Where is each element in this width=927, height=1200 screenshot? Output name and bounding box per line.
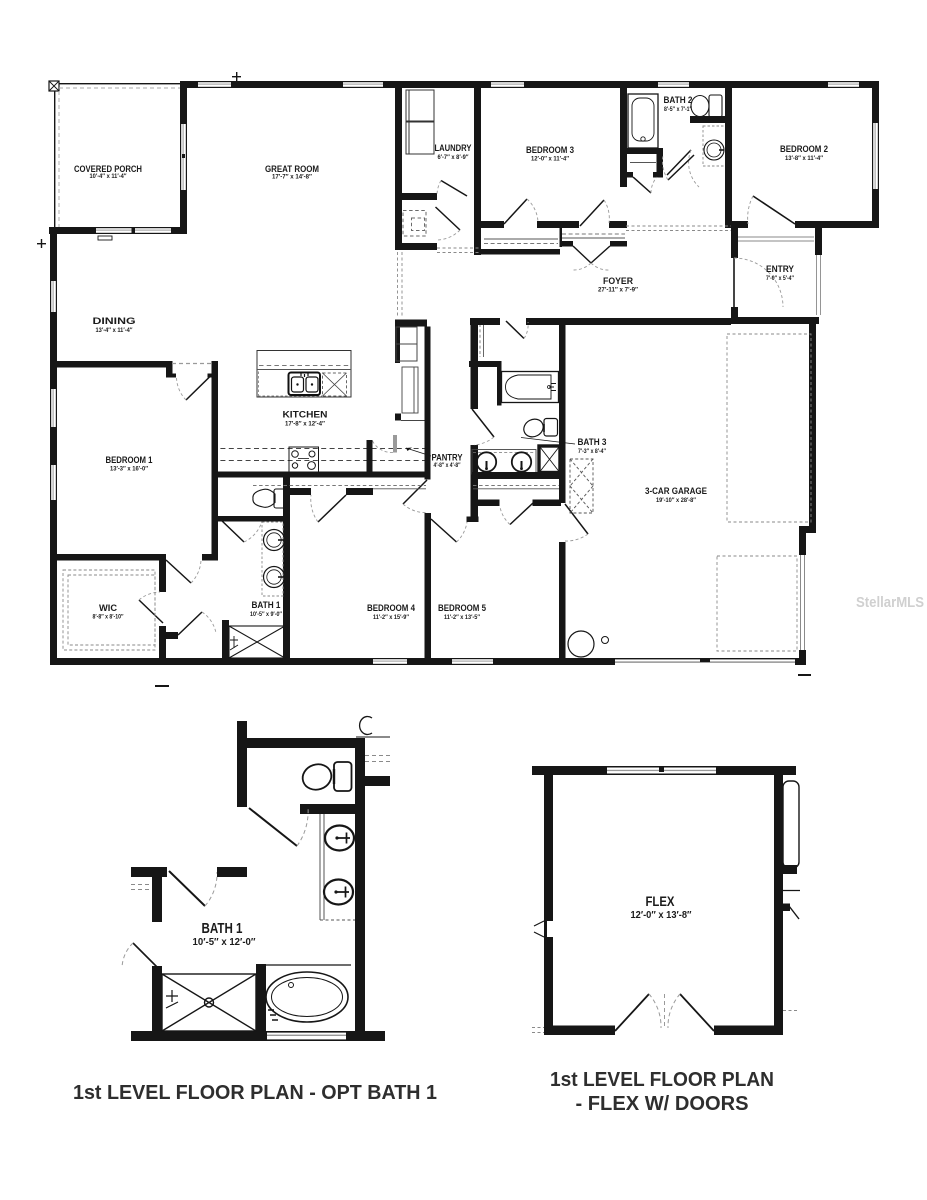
svg-text:13′-3″ x 16′-0″: 13′-3″ x 16′-0″ bbox=[110, 467, 148, 473]
svg-text:BATH 2: BATH 2 bbox=[664, 95, 693, 105]
svg-text:12′-0″ x 11′-4″: 12′-0″ x 11′-4″ bbox=[531, 157, 569, 163]
svg-text:COVERED PORCH: COVERED PORCH bbox=[74, 164, 142, 174]
svg-text:3-CAR GARAGE: 3-CAR GARAGE bbox=[645, 486, 707, 496]
svg-text:PANTRY: PANTRY bbox=[432, 453, 463, 463]
svg-text:KITCHEN: KITCHEN bbox=[283, 410, 328, 420]
svg-text:BEDROOM 4: BEDROOM 4 bbox=[367, 603, 416, 613]
svg-text:ENTRY: ENTRY bbox=[766, 264, 794, 274]
svg-text:BEDROOM 3: BEDROOM 3 bbox=[526, 145, 574, 155]
svg-text:- FLEX W/ DOORS: - FLEX W/ DOORS bbox=[576, 1092, 749, 1115]
svg-text:19′-10″ x 28′-8″: 19′-10″ x 28′-8″ bbox=[656, 498, 696, 504]
svg-text:11′-2″ x 13′-5″: 11′-2″ x 13′-5″ bbox=[444, 615, 480, 621]
svg-text:13′-4″ x 11′-4″: 13′-4″ x 11′-4″ bbox=[96, 328, 133, 334]
svg-text:17′-8″ x 12′-4″: 17′-8″ x 12′-4″ bbox=[285, 422, 325, 428]
svg-text:8′-5″ x 7′-1″: 8′-5″ x 7′-1″ bbox=[664, 107, 692, 113]
svg-text:BATH 3: BATH 3 bbox=[578, 437, 607, 447]
svg-text:GREAT ROOM: GREAT ROOM bbox=[265, 164, 319, 174]
svg-text:1st LEVEL FLOOR PLAN - OPT BAT: 1st LEVEL FLOOR PLAN - OPT BATH 1 bbox=[73, 1081, 437, 1104]
svg-text:4′-8″ x 4′-8″: 4′-8″ x 4′-8″ bbox=[434, 463, 461, 469]
svg-text:WIC: WIC bbox=[99, 603, 117, 613]
svg-text:11′-2″ x 15′-9″: 11′-2″ x 15′-9″ bbox=[373, 615, 409, 621]
svg-text:17′-7″ x 14′-8″: 17′-7″ x 14′-8″ bbox=[272, 175, 312, 181]
svg-text:BEDROOM 1: BEDROOM 1 bbox=[106, 455, 153, 465]
svg-text:LAUNDRY: LAUNDRY bbox=[435, 143, 472, 153]
svg-text:BATH 1: BATH 1 bbox=[252, 600, 281, 610]
svg-text:BATH 1: BATH 1 bbox=[202, 920, 243, 937]
svg-text:10′-4″ x 11′-4″: 10′-4″ x 11′-4″ bbox=[90, 174, 127, 180]
svg-text:7′-3″ x 8′-4″: 7′-3″ x 8′-4″ bbox=[578, 449, 606, 455]
svg-text:10′-5″ x 12′-0″: 10′-5″ x 12′-0″ bbox=[193, 937, 256, 948]
svg-text:7′-0″ x 5′-4″: 7′-0″ x 5′-4″ bbox=[766, 276, 794, 282]
svg-text:8′-8″ x 8′-10″: 8′-8″ x 8′-10″ bbox=[93, 615, 124, 621]
svg-text:StellarMLS: StellarMLS bbox=[856, 595, 924, 611]
svg-text:27′-11″ x 7′-9″: 27′-11″ x 7′-9″ bbox=[598, 288, 638, 294]
svg-text:DINING: DINING bbox=[93, 316, 136, 326]
svg-text:BEDROOM 2: BEDROOM 2 bbox=[780, 144, 828, 154]
svg-text:1st LEVEL FLOOR PLAN: 1st LEVEL FLOOR PLAN bbox=[550, 1068, 774, 1091]
svg-text:13′-8″ x 11′-4″: 13′-8″ x 11′-4″ bbox=[785, 156, 823, 162]
svg-text:12′-0″ x 13′-8″: 12′-0″ x 13′-8″ bbox=[631, 910, 692, 921]
svg-text:10′-5″ x 9′-0″: 10′-5″ x 9′-0″ bbox=[250, 612, 282, 618]
svg-text:FLEX: FLEX bbox=[646, 893, 676, 909]
svg-text:FOYER: FOYER bbox=[603, 276, 633, 286]
svg-text:6′-7″ x 8′-9″: 6′-7″ x 8′-9″ bbox=[438, 155, 469, 161]
svg-text:BEDROOM 5: BEDROOM 5 bbox=[438, 603, 486, 613]
